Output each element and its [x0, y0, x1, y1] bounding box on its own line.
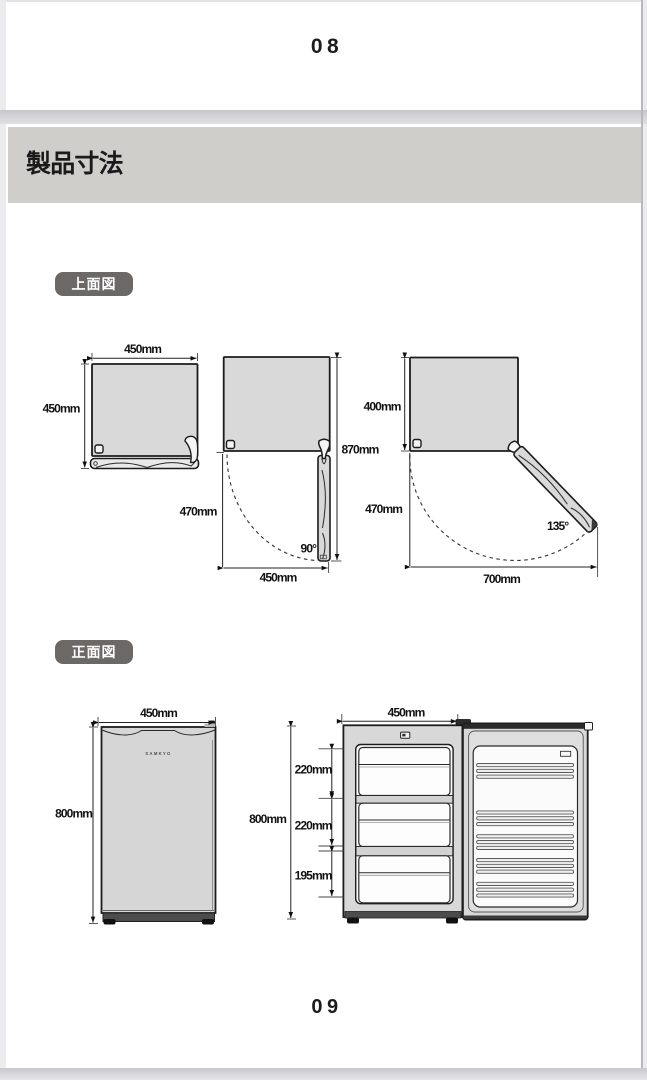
svg-text:400mm: 400mm	[364, 400, 401, 414]
svg-text:450mm: 450mm	[388, 706, 425, 720]
svg-text:135°: 135°	[547, 519, 569, 533]
svg-text:195mm: 195mm	[295, 869, 332, 883]
svg-text:470mm: 470mm	[180, 505, 217, 519]
svg-text:700mm: 700mm	[483, 572, 520, 586]
svg-text:220mm: 220mm	[295, 763, 332, 777]
svg-text:800mm: 800mm	[249, 812, 286, 826]
svg-text:870mm: 870mm	[342, 443, 379, 457]
svg-text:SAMKYO: SAMKYO	[145, 751, 171, 756]
svg-text:800mm: 800mm	[55, 807, 92, 821]
svg-text:450mm: 450mm	[260, 571, 297, 585]
svg-text:220mm: 220mm	[295, 819, 332, 833]
svg-text:450mm: 450mm	[140, 706, 177, 720]
svg-text:450mm: 450mm	[43, 402, 80, 416]
svg-text:90°: 90°	[301, 542, 318, 556]
svg-text:470mm: 470mm	[365, 502, 402, 516]
svg-text:450mm: 450mm	[124, 342, 161, 356]
